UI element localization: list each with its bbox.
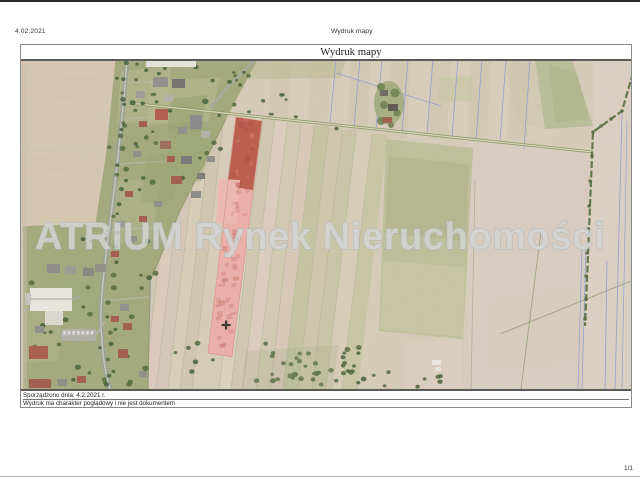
svg-text:ATRIUM Rynek Nieruchomości: ATRIUM Rynek Nieruchomości [35, 216, 605, 258]
